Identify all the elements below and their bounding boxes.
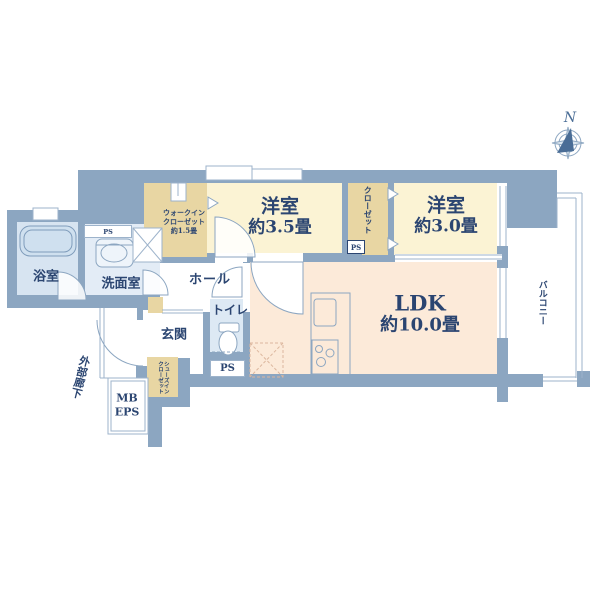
corridor-lines — [100, 308, 108, 378]
toilet-text: トイレ — [212, 303, 248, 317]
label-wic: ウォークイン クローゼット 約1.5畳 — [163, 209, 205, 235]
ldk-size: 約10.0畳 — [380, 316, 460, 337]
western-30-size: 約3.0畳 — [414, 217, 478, 237]
door-ldk — [251, 262, 303, 314]
label-hall: ホール — [189, 274, 231, 289]
label-western-35: 洋室 約3.5畳 — [248, 196, 312, 237]
label-balcony: バルコニー — [536, 262, 545, 342]
western-35-size: 約3.5畳 — [248, 218, 312, 238]
balcony-outline — [543, 193, 582, 381]
washbasin-icon — [96, 239, 133, 267]
ps-label: PS — [103, 228, 113, 236]
label-toilet: トイレ — [212, 304, 248, 318]
wic-line3: 約1.5畳 — [163, 226, 205, 235]
plan-linework — [0, 0, 600, 600]
ps-box-washroom: PS — [84, 225, 132, 238]
entrance-text: 玄関 — [161, 328, 187, 343]
label-mb-eps: MB EPS — [115, 392, 140, 421]
ps-label: PS — [351, 243, 361, 252]
ldk-name: LDK — [380, 292, 460, 316]
label-ldk: LDK 約10.0畳 — [380, 292, 460, 337]
entrance-step — [162, 310, 203, 313]
closet-text: クローゼット — [363, 186, 373, 234]
washroom-text: 洗面室 — [101, 277, 140, 292]
window-bath — [33, 208, 58, 220]
window-right-wall — [499, 186, 507, 338]
door-washroom — [143, 270, 168, 295]
western-30-name: 洋室 — [414, 195, 478, 217]
north-text: N — [564, 110, 576, 126]
ps-box-toilet: PS — [210, 360, 245, 377]
label-western-30: 洋室 約3.0畳 — [414, 195, 478, 236]
washer-pan-icon — [133, 228, 162, 262]
window-top-1 — [206, 166, 302, 180]
floor-plan: PS PS PS 浴室 洗面室 ウォークイン クローゼット 約1.5畳 ホール … — [0, 0, 600, 600]
mb-text: MB — [115, 392, 140, 406]
ps-label: PS — [220, 363, 235, 374]
ps-box-closet: PS — [347, 240, 365, 254]
hall-text: ホール — [189, 273, 231, 288]
label-bath: 浴室 — [33, 271, 59, 286]
toilet-icon — [212, 323, 242, 355]
balcony-text: バルコニー — [537, 280, 547, 325]
label-entrance: 玄関 — [161, 329, 187, 344]
label-closet: クローゼット — [364, 184, 372, 236]
label-shoes-closet: シューズインクローゼット — [156, 358, 168, 396]
western-35-name: 洋室 — [248, 196, 312, 218]
label-washroom: 洗面室 — [101, 278, 140, 293]
compass-north-label: N — [564, 110, 576, 126]
bathtub-icon — [20, 226, 76, 256]
wic-notch — [171, 183, 186, 201]
kitchen-icon — [311, 293, 350, 377]
fridge-space-icon — [250, 343, 283, 377]
eps-text: EPS — [115, 406, 140, 420]
bath-text: 浴室 — [33, 270, 59, 285]
door-bath — [58, 272, 86, 300]
shoes-closet-text: シューズインクローゼット — [157, 361, 169, 394]
window-west30-ldk — [395, 254, 502, 260]
compass-icon — [552, 127, 584, 159]
